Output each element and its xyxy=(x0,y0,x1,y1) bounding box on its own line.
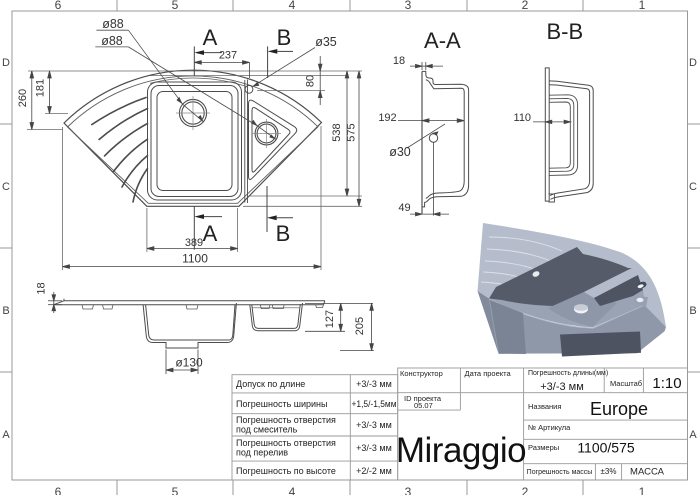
svg-text:A: A xyxy=(2,429,10,441)
svg-text:Погрешность массы: Погрешность массы xyxy=(527,469,593,476)
svg-text:4: 4 xyxy=(289,0,296,12)
svg-text:Конструктор: Конструктор xyxy=(400,369,443,378)
svg-text:205: 205 xyxy=(354,317,366,335)
svg-text:+1,5/-1,5мм: +1,5/-1,5мм xyxy=(352,399,397,409)
svg-text:+3/-3 мм: +3/-3 мм xyxy=(356,379,392,389)
svg-text:ø88: ø88 xyxy=(101,34,123,48)
svg-text:2: 2 xyxy=(522,485,529,495)
svg-text:B: B xyxy=(689,305,696,317)
svg-text:под смеситель: под смеситель xyxy=(236,425,298,435)
svg-text:18: 18 xyxy=(393,55,405,67)
svg-text:D: D xyxy=(2,57,10,69)
svg-text:Погрешность длины(мм): Погрешность длины(мм) xyxy=(528,370,608,377)
svg-text:6: 6 xyxy=(55,0,62,12)
svg-text:5: 5 xyxy=(172,485,179,495)
svg-text:260: 260 xyxy=(17,89,29,107)
svg-text:под перелив: под перелив xyxy=(236,448,288,458)
svg-text:Дата проекта: Дата проекта xyxy=(465,369,512,378)
svg-text:B: B xyxy=(2,305,9,317)
svg-text:1: 1 xyxy=(639,485,646,495)
svg-text:2: 2 xyxy=(522,0,529,12)
svg-text:ø30: ø30 xyxy=(389,145,411,159)
svg-text:05.07: 05.07 xyxy=(414,401,433,410)
svg-text:B: B xyxy=(276,221,291,246)
svg-text:A: A xyxy=(203,25,218,50)
svg-text:181: 181 xyxy=(35,79,47,97)
svg-text:127: 127 xyxy=(324,310,336,328)
svg-text:3: 3 xyxy=(405,485,412,495)
svg-text:5: 5 xyxy=(172,0,179,12)
svg-text:№ Артикула: № Артикула xyxy=(528,423,571,432)
svg-text:B: B xyxy=(277,25,292,50)
svg-text:Miraggio: Miraggio xyxy=(396,431,526,470)
svg-text:49: 49 xyxy=(398,202,410,214)
svg-text:Допуск по длине: Допуск по длине xyxy=(236,379,305,389)
svg-text:C: C xyxy=(689,181,697,193)
svg-text:ø130: ø130 xyxy=(175,356,203,370)
svg-text:A: A xyxy=(689,429,697,441)
svg-text:80: 80 xyxy=(305,75,317,87)
svg-text:МАССА: МАССА xyxy=(630,467,665,478)
svg-text:538: 538 xyxy=(331,123,343,141)
svg-text:Погрешность ширины: Погрешность ширины xyxy=(236,399,328,409)
svg-text:Погрешность отверстия: Погрешность отверстия xyxy=(236,415,336,425)
svg-text:1100/575: 1100/575 xyxy=(577,440,635,456)
svg-text:+3/-3 мм: +3/-3 мм xyxy=(356,443,392,453)
svg-text:6: 6 xyxy=(55,485,62,495)
svg-text:±3%: ±3% xyxy=(601,467,617,476)
svg-text:ø35: ø35 xyxy=(315,35,337,49)
svg-text:4: 4 xyxy=(289,485,296,495)
svg-text:Погрешность по высоте: Погрешность по высоте xyxy=(236,466,336,476)
svg-text:110: 110 xyxy=(514,112,532,124)
svg-text:+2/-2 мм: +2/-2 мм xyxy=(356,466,392,476)
svg-text:C: C xyxy=(2,181,10,193)
svg-text:A: A xyxy=(203,221,218,246)
svg-text:ø88: ø88 xyxy=(102,17,124,31)
svg-text:B-B: B-B xyxy=(546,19,583,44)
svg-text:Названия: Названия xyxy=(528,402,561,411)
svg-text:575: 575 xyxy=(346,123,358,141)
svg-text:Размеры: Размеры xyxy=(528,443,559,452)
svg-text:+3/-3 мм: +3/-3 мм xyxy=(540,381,584,393)
svg-text:192: 192 xyxy=(378,112,396,124)
svg-text:1: 1 xyxy=(639,0,646,12)
svg-text:237: 237 xyxy=(219,50,237,62)
svg-text:A-A: A-A xyxy=(424,28,461,53)
svg-text:389: 389 xyxy=(185,237,203,249)
svg-text:D: D xyxy=(689,57,697,69)
svg-text:Погрешность отверстия: Погрешность отверстия xyxy=(236,438,336,448)
svg-text:Масштаб: Масштаб xyxy=(610,379,642,388)
svg-text:3: 3 xyxy=(405,0,412,12)
svg-text:1100: 1100 xyxy=(182,252,208,266)
svg-text:18: 18 xyxy=(36,282,48,294)
svg-text:1:10: 1:10 xyxy=(652,375,681,392)
svg-text:+3/-3 мм: +3/-3 мм xyxy=(356,420,392,430)
svg-text:Europe: Europe xyxy=(590,399,648,419)
